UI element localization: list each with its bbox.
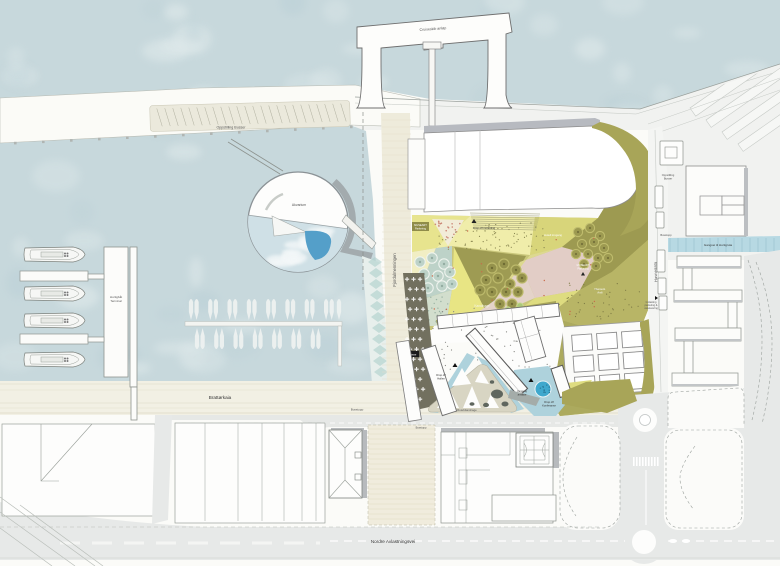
svg-text:Busstopp: Busstopp [660, 233, 672, 237]
svg-text:MUSEART: MUSEART [414, 223, 427, 227]
svg-text:MUSEART: MUSEART [577, 263, 590, 267]
svg-text:Drop off innlasting: Drop off innlasting [473, 226, 496, 230]
svg-text:Rutebilanshage: Rutebilanshage [457, 408, 477, 412]
svg-text:Parkering: Parkering [415, 227, 427, 231]
svg-text:Gangvei til Hurtigruta: Gangvei til Hurtigruta [704, 243, 733, 247]
svg-text:Oppstilling Busser: Oppstilling Busser [217, 126, 247, 130]
svg-text:Konferanse: Konferanse [542, 404, 556, 408]
svg-text:Inngang: Inngang [517, 389, 527, 393]
svg-text:Amfi: Amfi [597, 291, 603, 295]
svg-text:Nordre Avlastningsvei: Nordre Avlastningsvei [371, 539, 415, 544]
svg-text:Brattørkaia: Brattørkaia [209, 395, 232, 400]
svg-text:Kanalhage: Kanalhage [474, 304, 489, 308]
svg-text:Akvarium: Akvarium [292, 203, 306, 207]
svg-text:Terminal: Terminal [110, 299, 122, 303]
svg-text:Hotell inngang: Hotell inngang [544, 233, 562, 237]
svg-text:varelevering: varelevering [644, 307, 658, 310]
svg-text:Vitensent.: Vitensent. [594, 287, 606, 291]
svg-text:Drop off: Drop off [544, 400, 554, 404]
svg-text:Busstopp: Busstopp [416, 426, 427, 430]
svg-text:Parkering: Parkering [577, 267, 589, 271]
svg-text:Drop off: Drop off [436, 373, 446, 377]
svg-text:Hallen: Hallen [437, 377, 445, 381]
svg-text:Fjordalmenningen: Fjordalmenningen [392, 253, 397, 287]
svg-text:Busser: Busser [664, 177, 672, 181]
svg-text:Busstopp: Busstopp [351, 408, 364, 412]
svg-text:ansatte: ansatte [518, 393, 527, 397]
svg-text:Oppstilling: Oppstilling [662, 173, 675, 177]
